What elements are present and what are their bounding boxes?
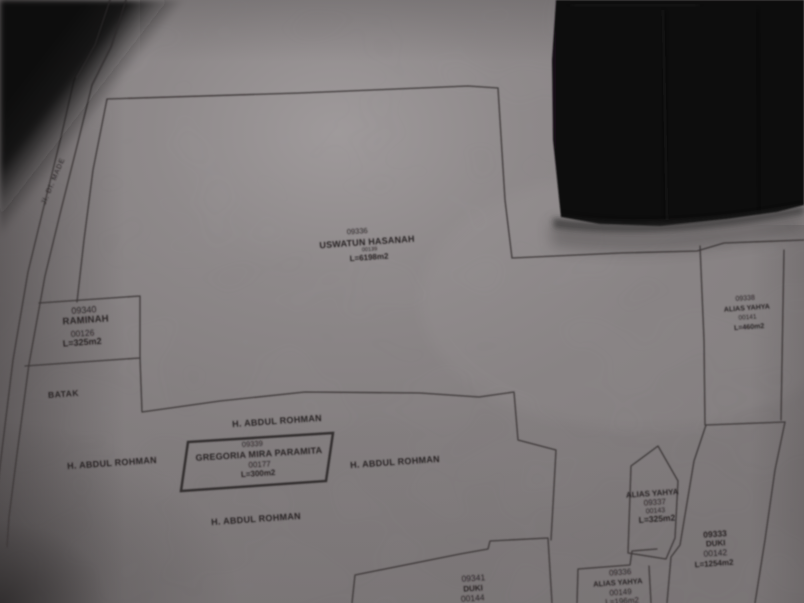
svg-text:09337: 09337 — [643, 497, 666, 508]
svg-text:09339: 09339 — [242, 439, 263, 449]
svg-text:00141: 00141 — [738, 313, 757, 321]
svg-text:00144: 00144 — [461, 592, 486, 603]
svg-text:L=196m2: L=196m2 — [605, 596, 640, 603]
svg-text:09341: 09341 — [461, 572, 486, 584]
svg-text:09336: 09336 — [609, 567, 632, 578]
svg-text:09338: 09338 — [735, 295, 755, 303]
svg-text:09336: 09336 — [347, 226, 368, 236]
svg-text:00142: 00142 — [703, 547, 728, 559]
